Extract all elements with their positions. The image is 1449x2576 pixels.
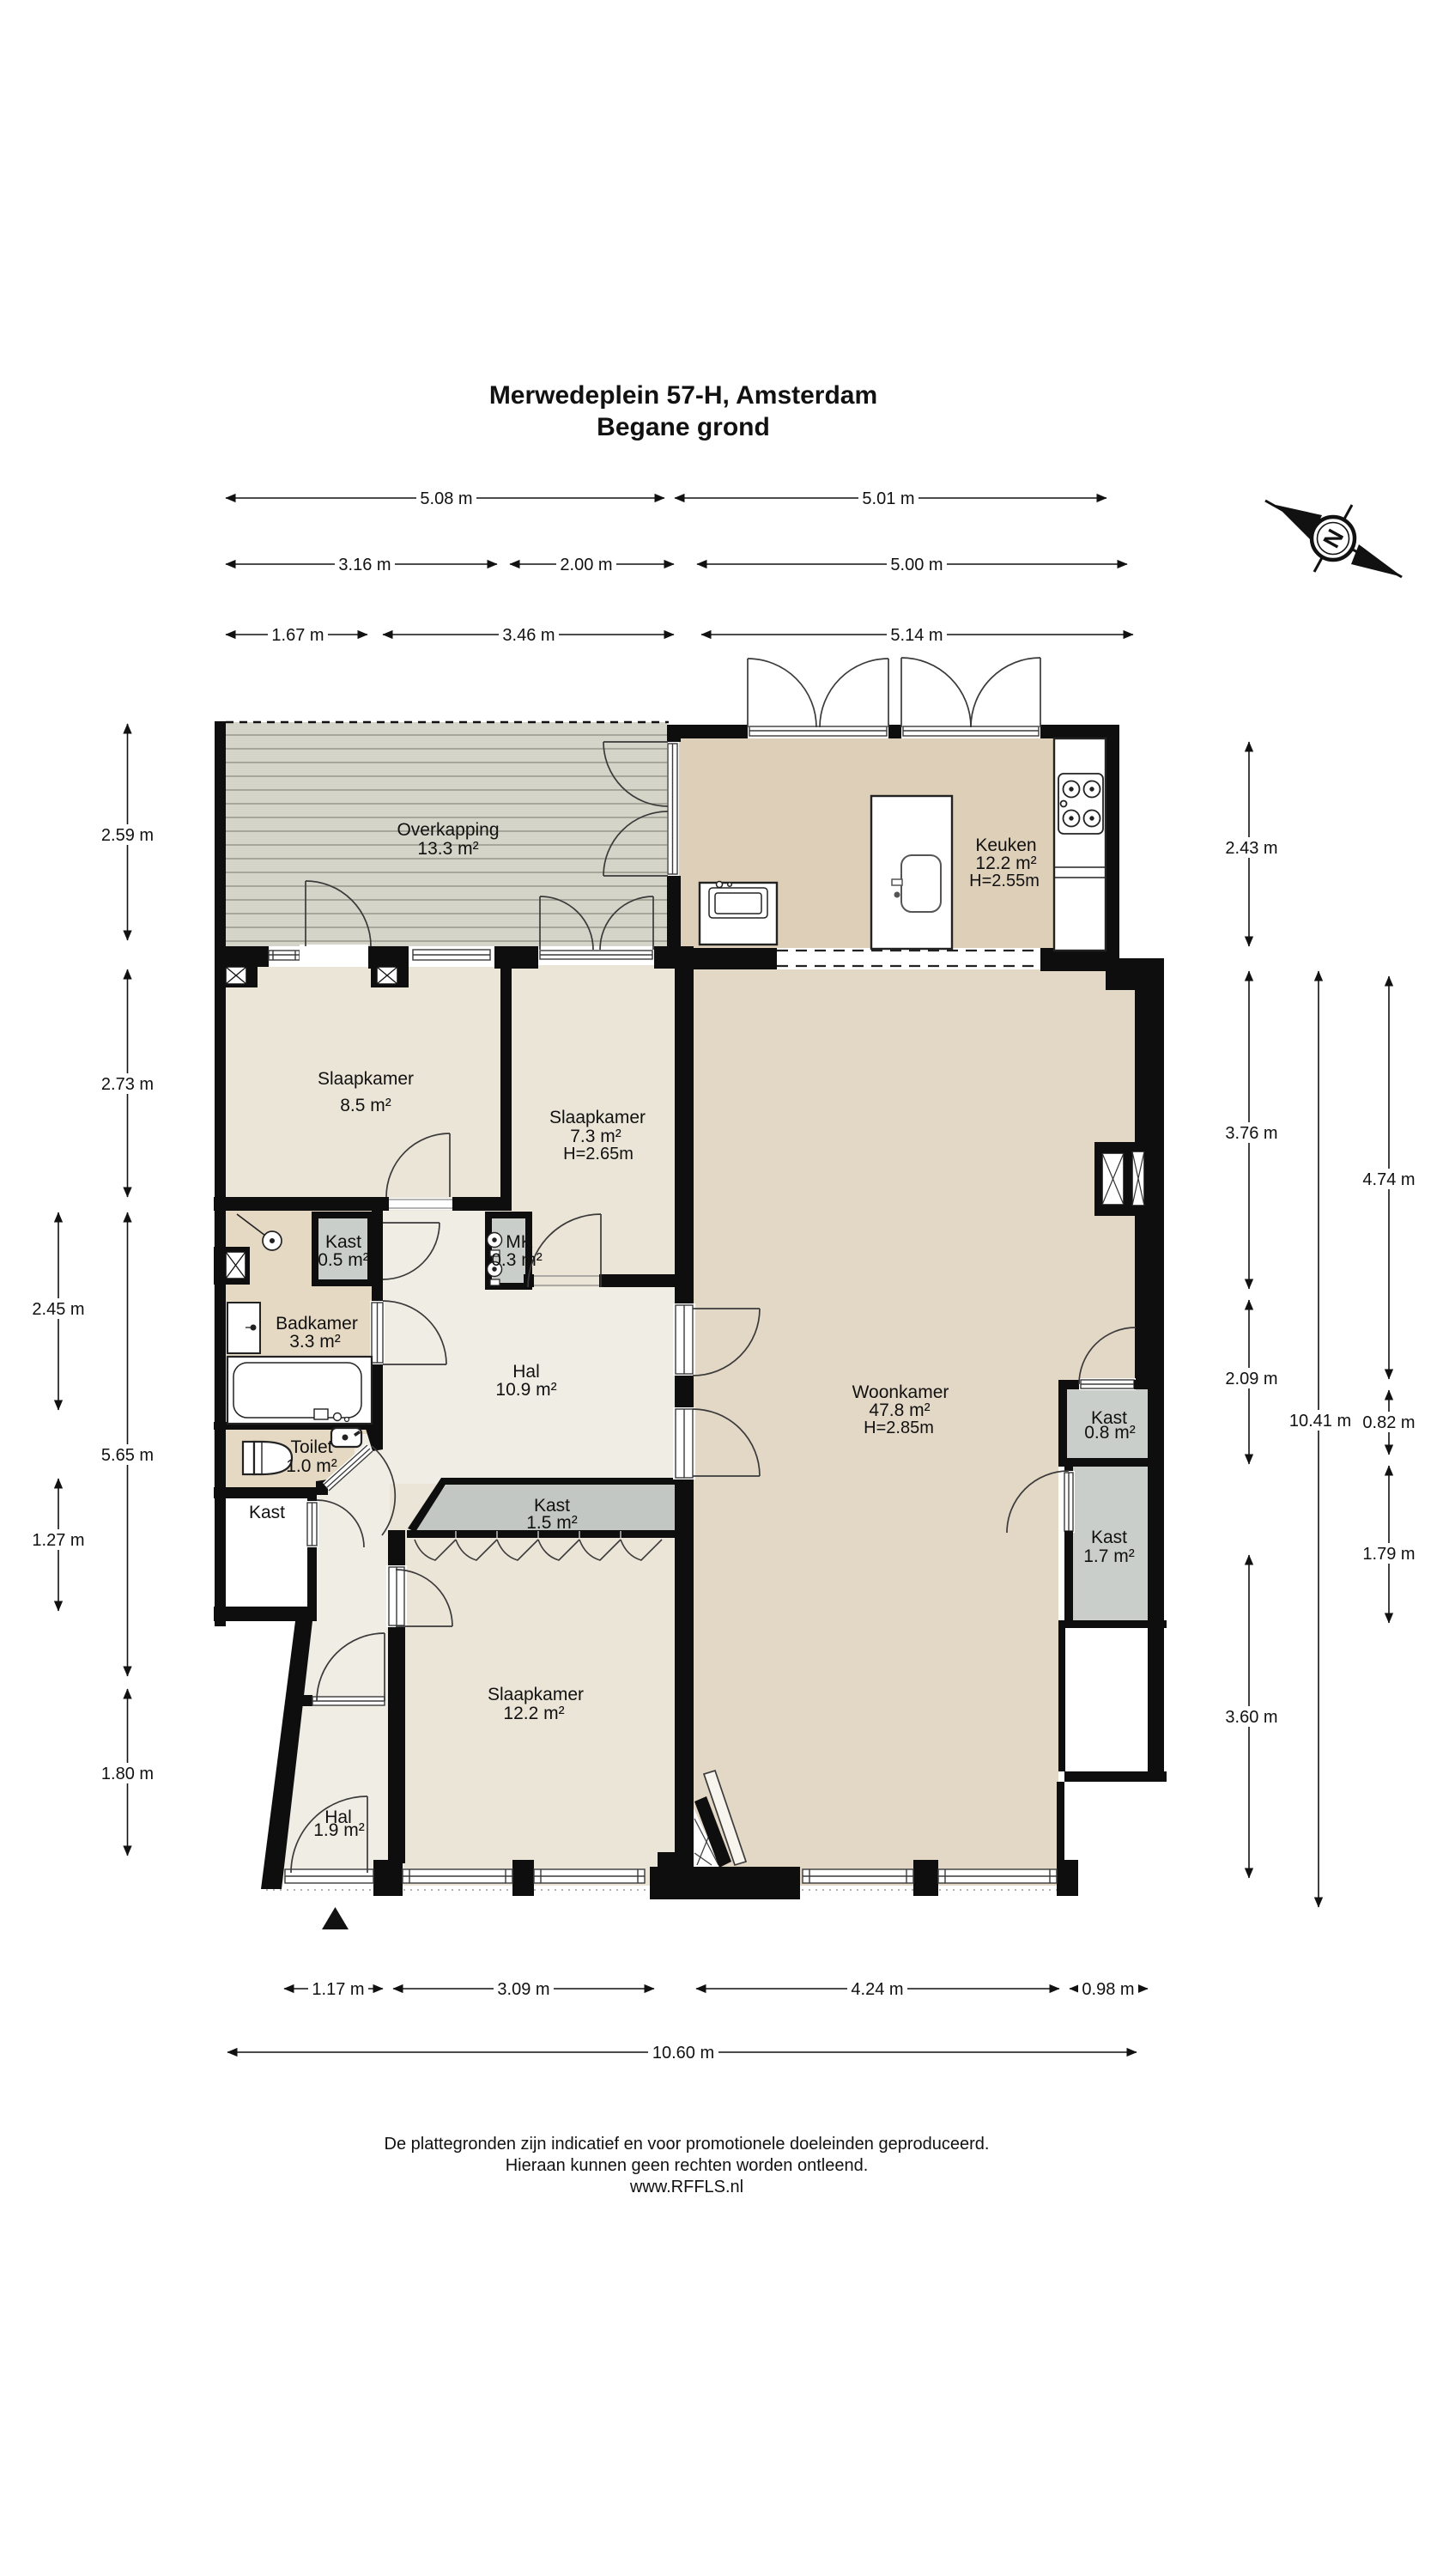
svg-text:1.80 m: 1.80 m [101, 1765, 154, 1783]
svg-text:Slaapkamer: Slaapkamer [318, 1069, 414, 1089]
svg-text:3.46 m: 3.46 m [502, 626, 555, 645]
svg-text:2.43 m: 2.43 m [1225, 839, 1277, 858]
svg-text:Kast: Kast [249, 1503, 285, 1522]
svg-text:7.3 m²: 7.3 m² [570, 1127, 621, 1146]
svg-text:2.09 m: 2.09 m [1225, 1370, 1277, 1388]
svg-text:5.00 m: 5.00 m [890, 556, 943, 574]
svg-text:MK: MK [506, 1232, 533, 1252]
svg-text:Hal: Hal [512, 1362, 540, 1382]
svg-text:10.60 m: 10.60 m [652, 2044, 714, 2063]
svg-text:12.2 m²: 12.2 m² [975, 854, 1036, 873]
svg-text:1.0 m²: 1.0 m² [286, 1456, 337, 1476]
svg-text:0.8 m²: 0.8 m² [1084, 1423, 1136, 1443]
svg-text:1.27 m: 1.27 m [32, 1531, 84, 1550]
svg-text:Slaapkamer: Slaapkamer [488, 1685, 584, 1704]
svg-text:Merwedeplein 57-H, Amsterdam: Merwedeplein 57-H, Amsterdam [489, 381, 877, 410]
svg-text:0.3 m²: 0.3 m² [491, 1250, 543, 1270]
svg-text:5.14 m: 5.14 m [890, 626, 943, 645]
svg-text:2.00 m: 2.00 m [560, 556, 612, 574]
svg-text:Hieraan kunnen geen rechten wo: Hieraan kunnen geen rechten worden ontle… [506, 2156, 869, 2175]
svg-text:1.17 m: 1.17 m [312, 1980, 364, 1999]
svg-text:3.16 m: 3.16 m [338, 556, 391, 574]
svg-text:2.45 m: 2.45 m [32, 1300, 84, 1319]
svg-text:Toilet: Toilet [290, 1437, 332, 1457]
svg-text:10.9 m²: 10.9 m² [495, 1380, 556, 1400]
svg-text:Woonkamer: Woonkamer [852, 1382, 949, 1402]
svg-text:2.59 m: 2.59 m [101, 826, 154, 845]
svg-text:4.24 m: 4.24 m [851, 1980, 903, 1999]
svg-text:4.74 m: 4.74 m [1362, 1170, 1415, 1189]
svg-text:Kast: Kast [1091, 1528, 1127, 1547]
svg-text:H=2.65m: H=2.65m [563, 1145, 634, 1163]
svg-text:0.82 m: 0.82 m [1362, 1413, 1415, 1432]
svg-text:0.98 m: 0.98 m [1082, 1980, 1134, 1999]
svg-text:5.08 m: 5.08 m [420, 489, 472, 508]
svg-text:Keuken: Keuken [975, 835, 1036, 855]
svg-text:2.73 m: 2.73 m [101, 1075, 154, 1094]
svg-text:3.09 m: 3.09 m [497, 1980, 549, 1999]
svg-text:5.65 m: 5.65 m [101, 1446, 154, 1465]
svg-text:H=2.85m: H=2.85m [864, 1419, 934, 1437]
svg-text:Badkamer: Badkamer [276, 1314, 358, 1334]
svg-text:12.2 m²: 12.2 m² [503, 1704, 564, 1723]
svg-text:1.9 m²: 1.9 m² [313, 1820, 365, 1840]
svg-text:Slaapkamer: Slaapkamer [549, 1108, 646, 1127]
svg-text:De plattegronden zijn indicati: De plattegronden zijn indicatief en voor… [385, 2135, 990, 2154]
svg-text:Kast: Kast [325, 1232, 361, 1252]
svg-text:1.5 m²: 1.5 m² [526, 1513, 578, 1533]
svg-text:8.5 m²: 8.5 m² [340, 1096, 391, 1115]
svg-text:Overkapping: Overkapping [397, 820, 499, 840]
svg-text:3.60 m: 3.60 m [1225, 1708, 1277, 1727]
svg-text:10.41 m: 10.41 m [1289, 1412, 1351, 1431]
svg-text:5.01 m: 5.01 m [862, 489, 914, 508]
svg-text:Begane grond: Begane grond [597, 413, 770, 441]
svg-text:13.3 m²: 13.3 m² [417, 839, 478, 859]
svg-text:H=2.55m: H=2.55m [969, 872, 1040, 890]
svg-text:0.5 m²: 0.5 m² [318, 1250, 369, 1270]
svg-text:1.79 m: 1.79 m [1362, 1545, 1415, 1564]
svg-text:www.RFFLS.nl: www.RFFLS.nl [629, 2178, 743, 2196]
svg-text:1.7 m²: 1.7 m² [1083, 1546, 1135, 1566]
svg-text:3.76 m: 3.76 m [1225, 1124, 1277, 1143]
svg-text:47.8 m²: 47.8 m² [869, 1400, 930, 1420]
svg-text:3.3 m²: 3.3 m² [289, 1332, 341, 1352]
svg-text:1.67 m: 1.67 m [271, 626, 324, 645]
